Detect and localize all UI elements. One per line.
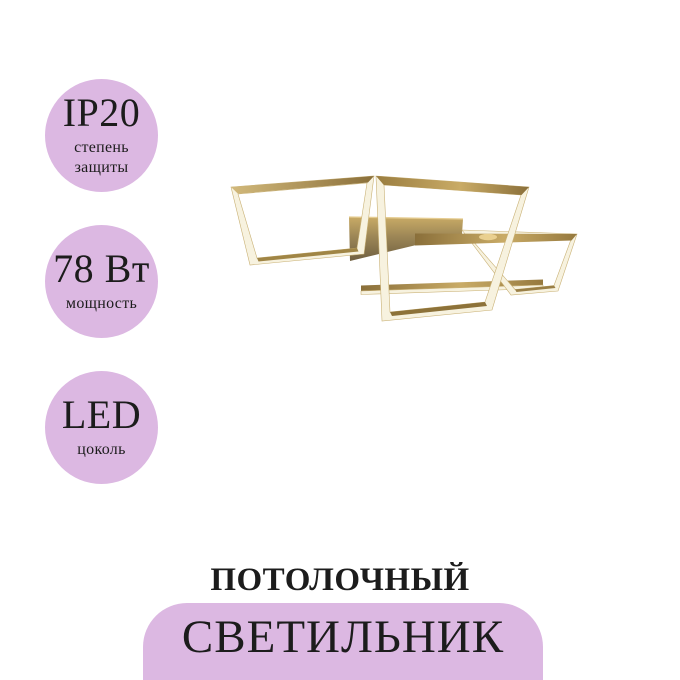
badge-label: степень защиты bbox=[74, 138, 129, 178]
badge-label: цоколь bbox=[77, 440, 125, 460]
badge-value: 78 Вт bbox=[53, 249, 150, 290]
product-card: IP20 степень защиты 78 Вт мощность LED ц… bbox=[0, 0, 680, 680]
badge-value: IP20 bbox=[63, 93, 141, 134]
product-title-line2: СВЕТИЛЬНИК bbox=[182, 614, 504, 661]
badge-label: мощность bbox=[66, 294, 137, 314]
product-image bbox=[210, 155, 590, 345]
badge-power: 78 Вт мощность bbox=[45, 225, 158, 338]
badge-ip-rating: IP20 степень защиты bbox=[45, 79, 158, 192]
badge-value: LED bbox=[62, 395, 141, 436]
product-title-banner: СВЕТИЛЬНИК bbox=[143, 603, 543, 680]
badge-led-base: LED цоколь bbox=[45, 371, 158, 484]
product-title-line1: ПОТОЛОЧНЫЙ bbox=[0, 562, 680, 598]
